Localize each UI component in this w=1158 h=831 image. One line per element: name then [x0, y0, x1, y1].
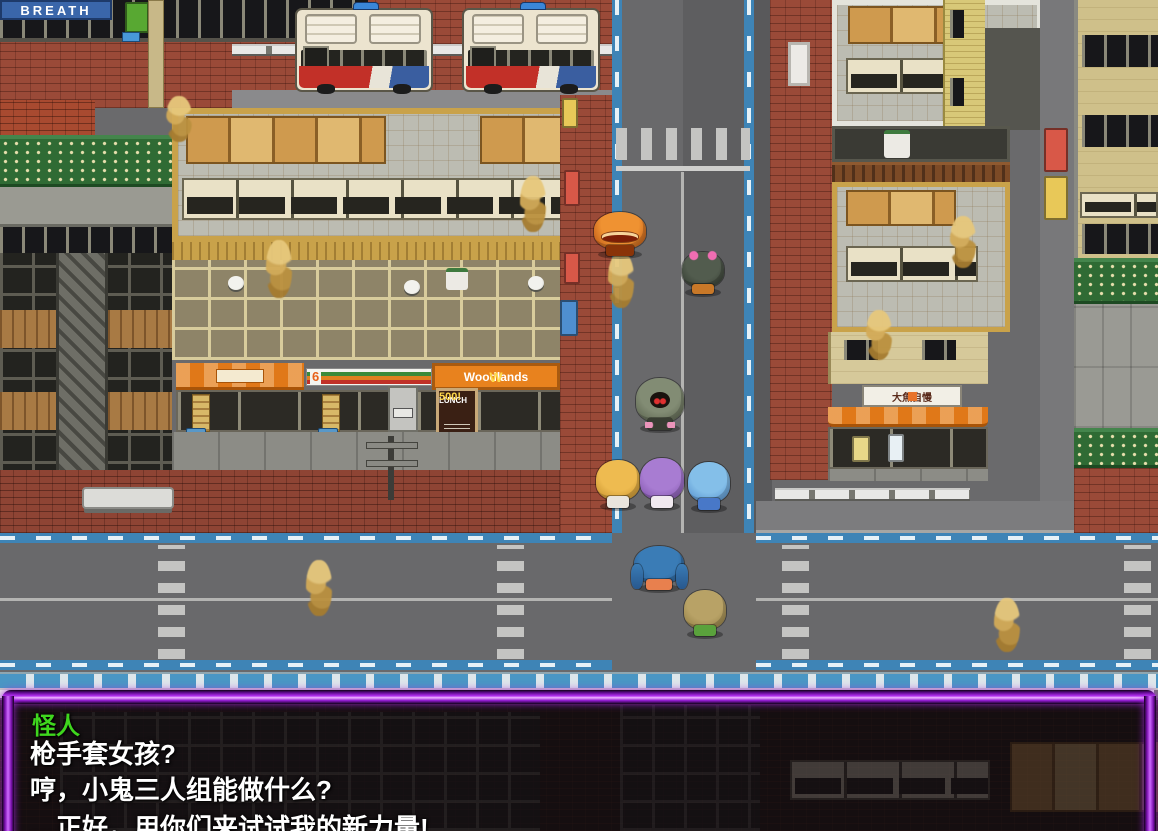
purple-girl-sprite[interactable] — [640, 458, 684, 508]
dialogue-line-3: …正好，用你们来试试我的新力量! — [30, 808, 429, 831]
bow-girl-sprite[interactable] — [682, 252, 724, 294]
blue-girl-sprite[interactable] — [688, 462, 730, 510]
twintail-girl-sprite[interactable] — [634, 546, 684, 590]
sprite-hair — [640, 458, 684, 500]
sprite-body — [694, 625, 716, 636]
gold-smoke-sprite — [306, 560, 332, 616]
hood-face — [650, 392, 670, 409]
gold-smoke-sprite — [866, 310, 892, 360]
sprite-body — [646, 579, 672, 590]
sprite-body — [651, 496, 674, 508]
sprite-hair — [688, 462, 730, 502]
gold-smoke-sprite — [608, 252, 634, 308]
dialogue-line-1: 枪手套女孩? — [30, 734, 176, 771]
twintail-left — [631, 564, 643, 589]
dialogue-line-2: 哼，小鬼三人组能做什么? — [30, 770, 332, 807]
sprite-body — [692, 284, 714, 294]
gold-smoke-sprite — [266, 240, 292, 298]
hood-hands — [645, 422, 676, 428]
dialogue-frame-top — [2, 690, 1156, 704]
gold-smoke-sprite — [520, 176, 546, 232]
monster-mouth — [602, 232, 637, 242]
gold-smoke-sprite — [950, 216, 976, 268]
dialogue-window[interactable]: 怪人 枪手套女孩? 哼，小鬼三人组能做什么? …正好，用你们来试试我的新力量! — [2, 690, 1156, 831]
hair-bows — [682, 249, 724, 261]
sprite-hair — [684, 590, 726, 629]
game-viewport[interactable]: BREATH — [0, 0, 1158, 831]
orange-monster-sprite[interactable] — [594, 212, 646, 256]
hooded-figure-sprite[interactable] — [636, 378, 684, 430]
sprite-body — [607, 496, 630, 508]
sprite-hair — [596, 460, 640, 500]
blonde-girl-sprite[interactable] — [596, 460, 640, 508]
gold-smoke-sprite — [994, 598, 1020, 652]
sprite-body — [606, 245, 633, 256]
twintail-right — [676, 564, 688, 589]
brown-kid-sprite[interactable] — [684, 590, 726, 636]
dialogue-frame-right — [1144, 696, 1156, 831]
sprite-body — [698, 498, 720, 510]
dialogue-frame-left — [2, 696, 14, 831]
gold-smoke-sprite — [166, 96, 192, 142]
sprite-hair — [594, 212, 646, 249]
